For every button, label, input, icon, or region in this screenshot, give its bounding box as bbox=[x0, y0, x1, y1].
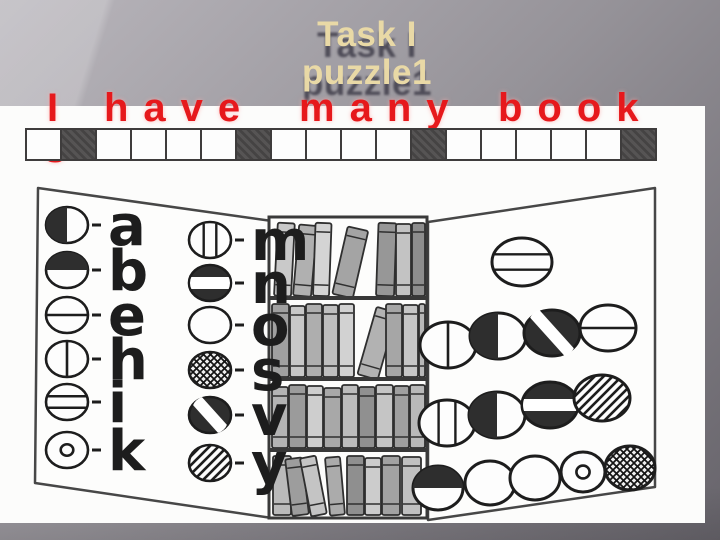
vertical-line-circle bbox=[46, 341, 88, 377]
answer-row3-circle-1 bbox=[419, 400, 475, 446]
answer-row2-circle-2 bbox=[470, 313, 526, 359]
crossword-strip bbox=[25, 128, 657, 161]
answer-row2-circle-4 bbox=[580, 305, 636, 351]
book-spine bbox=[359, 387, 375, 448]
strip-cell-white bbox=[95, 128, 132, 161]
book-spine bbox=[342, 385, 358, 448]
book-spine bbox=[290, 306, 305, 377]
book-spine bbox=[365, 458, 381, 515]
book-spine bbox=[386, 304, 402, 377]
legend-letter-k: k bbox=[108, 419, 147, 484]
answer-row4-circle-4 bbox=[561, 452, 605, 492]
legend-letter-y: y bbox=[251, 432, 288, 497]
book-spine bbox=[289, 385, 306, 448]
top-half-filled-circle bbox=[46, 252, 88, 288]
sentence-word-i: I bbox=[47, 88, 73, 128]
sentence-word-many: many bbox=[299, 88, 464, 128]
strip-cell-white bbox=[445, 128, 482, 161]
book-spine bbox=[307, 386, 323, 448]
sentence-word-have: have bbox=[104, 88, 255, 128]
book-spine bbox=[403, 305, 418, 377]
puzzle-illustration: abehikmnosvy bbox=[32, 183, 708, 523]
book-spine bbox=[347, 456, 364, 515]
book-spine bbox=[376, 223, 397, 297]
strip-cell-white bbox=[200, 128, 237, 161]
inner-dot-circle bbox=[46, 432, 88, 468]
strip-cell-white bbox=[550, 128, 587, 161]
strip-cell-white bbox=[130, 128, 167, 161]
horizontal-band-circle bbox=[46, 384, 88, 420]
empty-circle bbox=[189, 307, 231, 343]
slide-title: Task I puzzle1 bbox=[252, 16, 482, 92]
answer-row3-circle-2 bbox=[469, 392, 525, 438]
crosshatch-circle bbox=[189, 352, 231, 388]
book-spine bbox=[412, 223, 425, 296]
strip-cell-black bbox=[235, 128, 272, 161]
answer-row1-circle-1 bbox=[492, 238, 552, 286]
strip-cell-white bbox=[340, 128, 377, 161]
slide: Task I puzzle1 I have many book s abehik… bbox=[0, 0, 720, 540]
horizontal-line-circle bbox=[46, 297, 88, 333]
book-spine bbox=[339, 304, 354, 377]
strip-cell-black bbox=[60, 128, 97, 161]
book-spine bbox=[323, 305, 338, 377]
book-spine bbox=[396, 224, 411, 296]
strip-cell-black bbox=[620, 128, 657, 161]
book-spine bbox=[306, 304, 322, 377]
strip-cell-white bbox=[515, 128, 552, 161]
vertical-band-circle bbox=[189, 222, 231, 258]
sentence-word-book: book bbox=[498, 88, 654, 128]
strip-cell-white bbox=[165, 128, 202, 161]
book-spine bbox=[313, 223, 332, 297]
answer-row4-circle-3 bbox=[510, 456, 560, 500]
strip-cell-white bbox=[270, 128, 307, 161]
shelf-board bbox=[269, 448, 427, 452]
strip-cell-white bbox=[25, 128, 62, 161]
answer-row2-circle-1 bbox=[420, 322, 476, 368]
strip-cell-white bbox=[375, 128, 412, 161]
shelf-board bbox=[269, 296, 427, 300]
strip-cell-white bbox=[480, 128, 517, 161]
book-spine bbox=[382, 456, 400, 515]
answer-row4-circle-1 bbox=[413, 466, 463, 510]
answer-row3-circle-4 bbox=[574, 375, 630, 421]
title-line-1: Task I bbox=[252, 16, 482, 54]
answer-row4-circle-5 bbox=[605, 446, 655, 490]
book-spine bbox=[394, 386, 409, 448]
book-spine bbox=[324, 388, 341, 448]
strip-cell-white bbox=[305, 128, 342, 161]
shelf-board bbox=[269, 377, 427, 381]
strip-cell-black bbox=[410, 128, 447, 161]
left-half-filled-circle bbox=[46, 207, 88, 243]
answer-row4-circle-2 bbox=[465, 461, 515, 505]
diagonal-hatch-circle bbox=[189, 445, 231, 481]
book-spine bbox=[376, 385, 393, 448]
strip-cell-white bbox=[585, 128, 622, 161]
